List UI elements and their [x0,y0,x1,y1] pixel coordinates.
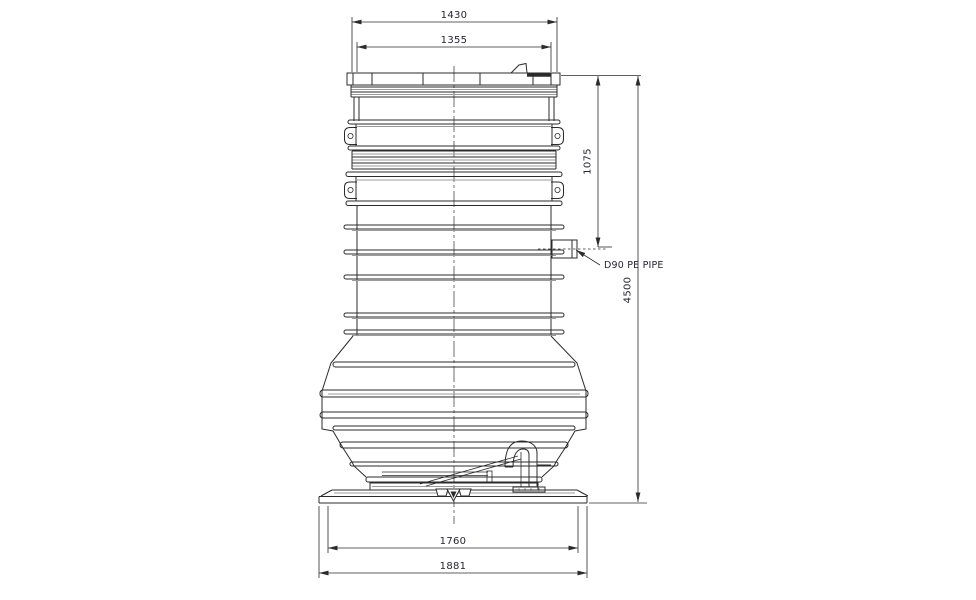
dim-label-1430: 1430 [441,10,468,21]
dimension-base-inner: 1760 [328,506,578,553]
left-lug-hole [348,133,353,138]
dim-label-4500: 4500 [623,277,634,304]
right-lug-hole [555,187,560,192]
right-lug [551,182,564,199]
right-lug-hole [555,133,560,138]
bottom-anchor-funnel [436,489,471,501]
dimension-inlet-height: 1075 [583,76,613,247]
lid-lifting-lug [511,64,527,74]
corrugated-section [352,151,556,169]
tank-lid [347,64,560,86]
note-label-d90-pe-pipe: D90 PE PIPE [604,260,664,271]
dim-label-1760: 1760 [440,536,467,547]
right-lug [551,128,564,145]
left-lug-hole [348,187,353,192]
left-lug [345,182,358,199]
technical-drawing-canvas: 1430 1355 1075 4500 D90 PE PIPE 1760 18 [0,0,976,600]
dim-label-1075: 1075 [583,148,594,175]
inlet-pipe-note: D90 PE PIPE [576,250,664,271]
left-lug [345,128,358,145]
dim-label-1355: 1355 [441,35,468,46]
pump-station-elevation-drawing: 1430 1355 1075 4500 D90 PE PIPE 1760 18 [0,0,976,600]
dim-label-1881: 1881 [440,561,467,572]
lifting-chain [420,456,518,484]
